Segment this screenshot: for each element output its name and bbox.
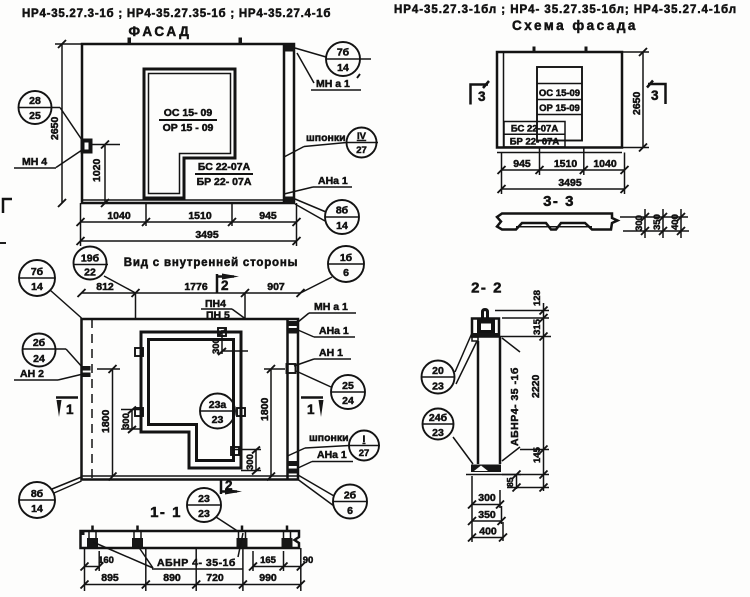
svg-text:14: 14 [31,503,43,515]
svg-text:1- 1: 1- 1 [150,504,182,521]
svg-text:300: 300 [634,215,645,231]
svg-text:1: 1 [307,402,315,417]
svg-text:6: 6 [347,505,353,517]
svg-text:I: I [363,434,366,445]
svg-text:720: 720 [206,572,224,584]
svg-text:1040: 1040 [107,210,131,222]
svg-text:14: 14 [31,281,43,293]
svg-text:ОС 15- 09: ОС 15- 09 [164,107,213,119]
svg-text:БР 22- 07А: БР 22- 07А [197,176,252,188]
svg-text:945: 945 [513,158,531,170]
svg-text:7б: 7б [337,47,350,59]
svg-text:8б: 8б [31,488,44,500]
svg-text:АН 2: АН 2 [20,368,44,380]
svg-text:АН 1: АН 1 [319,347,343,359]
svg-text:895: 895 [101,572,119,584]
svg-text:24б: 24б [429,412,448,424]
svg-text:27: 27 [356,145,367,156]
svg-text:Схема фасада: Схема фасада [512,18,638,33]
svg-text:2б: 2б [33,337,46,349]
svg-text:23: 23 [432,427,444,439]
svg-text:23а: 23а [209,399,227,411]
svg-text:3: 3 [478,89,486,104]
svg-text:128: 128 [532,290,543,306]
svg-text:ОР 15-09: ОР 15-09 [539,103,580,114]
svg-text:22: 22 [84,267,96,279]
svg-text:165: 165 [260,555,277,566]
svg-text:27: 27 [359,448,370,459]
svg-text:85: 85 [505,477,515,487]
svg-text:МН 4: МН 4 [22,156,47,168]
svg-text:25: 25 [342,380,354,392]
svg-text:МН а 1: МН а 1 [316,78,350,90]
svg-text:МН а 1: МН а 1 [314,301,348,313]
svg-text:1800: 1800 [100,409,112,433]
svg-text:НР4-35.27.3-1бл ; НР4- 35.27.: НР4-35.27.3-1бл ; НР4- 35.27.35-1бл; НР4… [394,4,737,16]
svg-text:2650: 2650 [631,91,643,115]
svg-text:23: 23 [198,493,210,505]
svg-text:90: 90 [303,555,314,566]
svg-text:ОР 15 - 09: ОР 15 - 09 [163,122,214,134]
svg-text:25: 25 [29,110,41,122]
svg-text:3- 3: 3- 3 [543,193,575,210]
svg-text:шпонки: шпонки [309,432,349,444]
svg-text:НР4-35.27.3-1б ; НР4-35.27.35: НР4-35.27.3-1б ; НР4-35.27.35-1б ; НР4-3… [22,8,331,20]
svg-text:14: 14 [336,220,348,232]
svg-text:2220: 2220 [530,374,542,398]
svg-text:945: 945 [259,210,277,222]
svg-text:300: 300 [245,454,256,470]
svg-text:7б: 7б [31,266,44,278]
svg-text:1776: 1776 [184,281,208,293]
svg-text:890: 890 [163,572,181,584]
svg-text:28: 28 [29,95,41,107]
svg-text:АНа 1: АНа 1 [319,325,349,337]
svg-text:2б: 2б [344,490,357,502]
svg-text:3: 3 [651,88,659,103]
svg-text:14: 14 [337,62,349,74]
svg-text:1б: 1б [340,252,353,264]
svg-text:300: 300 [478,492,496,504]
svg-text:БС 22-07А: БС 22-07А [198,161,251,173]
svg-text:2: 2 [225,478,233,493]
svg-text:ОС 15-09: ОС 15-09 [539,88,580,99]
svg-text:АНа 1: АНа 1 [318,175,348,187]
svg-text:1: 1 [66,402,74,417]
svg-text:шпонки: шпонки [306,132,346,144]
svg-text:Вид с внутренней стороны: Вид с внутренней стороны [124,257,299,269]
svg-text:300: 300 [211,338,222,354]
svg-text:350: 350 [478,509,496,521]
svg-text:300: 300 [121,413,132,429]
svg-text:19б: 19б [81,253,100,265]
svg-text:400: 400 [479,526,497,538]
svg-text:1040: 1040 [593,158,617,170]
svg-text:145: 145 [532,446,543,463]
svg-text:АНа 1: АНа 1 [317,449,347,461]
svg-text:БС 22-07А: БС 22-07А [511,124,559,135]
svg-text:АБНР4- 35 -1б: АБНР4- 35 -1б [509,367,521,446]
svg-text:907: 907 [267,281,285,293]
svg-text:350: 350 [652,214,663,230]
svg-text:990: 990 [259,572,277,584]
svg-text:315: 315 [532,318,543,335]
svg-text:20: 20 [432,365,444,377]
svg-text:1020: 1020 [91,158,103,182]
svg-text:8б: 8б [336,205,349,217]
svg-text:24: 24 [342,395,354,407]
svg-text:2650: 2650 [49,116,61,140]
svg-text:160: 160 [98,555,114,566]
svg-text:23: 23 [432,381,444,393]
svg-text:1800: 1800 [259,397,271,421]
svg-text:23: 23 [212,414,224,426]
svg-text:ПН4: ПН4 [205,298,226,310]
svg-text:24: 24 [33,353,45,365]
svg-text:ФАСАД: ФАСАД [129,24,192,39]
svg-text:БР 22- 07А: БР 22- 07А [510,137,560,148]
svg-text:3495: 3495 [195,229,219,241]
svg-text:6: 6 [343,267,349,279]
svg-text:23: 23 [198,508,210,520]
svg-text:2- 2: 2- 2 [471,280,503,297]
svg-text:IV: IV [357,131,367,142]
svg-text:812: 812 [96,281,114,293]
svg-text:3495: 3495 [558,177,582,189]
svg-text:1510: 1510 [554,158,578,170]
svg-text:2: 2 [221,278,229,293]
svg-text:400: 400 [670,214,681,230]
svg-text:1510: 1510 [188,210,212,222]
